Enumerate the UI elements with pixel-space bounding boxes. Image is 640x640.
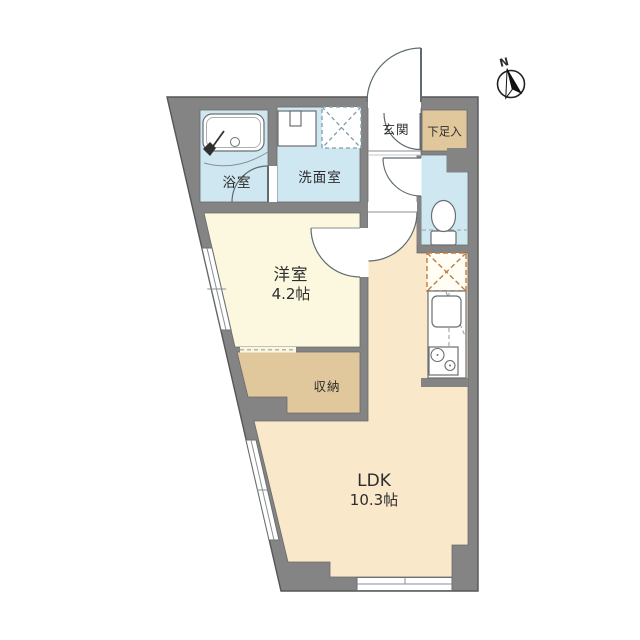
compass: N xyxy=(498,55,525,98)
entrance-door xyxy=(367,48,421,108)
washroom-label: 洗面室 xyxy=(298,169,342,186)
floorplan-svg: 浴室 洗面室 玄関 下足入 洋室 4.2帖 収納 LDK 10.3帖 N xyxy=(0,0,640,640)
washer-space xyxy=(322,107,361,148)
toilet-corner-wall xyxy=(447,148,468,172)
ldk-size: 10.3帖 xyxy=(350,491,398,509)
ldk-label: LDK xyxy=(357,471,392,491)
floorplan-canvas: 浴室 洗面室 玄関 下足入 洋室 4.2帖 収納 LDK 10.3帖 N xyxy=(0,0,640,640)
ldk-balcony-window xyxy=(357,578,452,591)
washbasin xyxy=(278,111,316,146)
refrigerator-space xyxy=(427,253,466,291)
western-room-size: 4.2帖 xyxy=(272,285,311,303)
entrance-label: 玄関 xyxy=(382,122,409,137)
storage-label: 収納 xyxy=(313,379,340,394)
kitchen-stove xyxy=(429,347,458,375)
compass-north-label: N xyxy=(498,55,510,70)
western-room-label: 洋室 xyxy=(274,265,309,284)
kitchen-counter-end-wall xyxy=(421,378,468,387)
kitchen-sink xyxy=(432,296,461,327)
shoe-storage-label: 下足入 xyxy=(427,125,462,139)
bathroom-label: 浴室 xyxy=(223,174,252,191)
